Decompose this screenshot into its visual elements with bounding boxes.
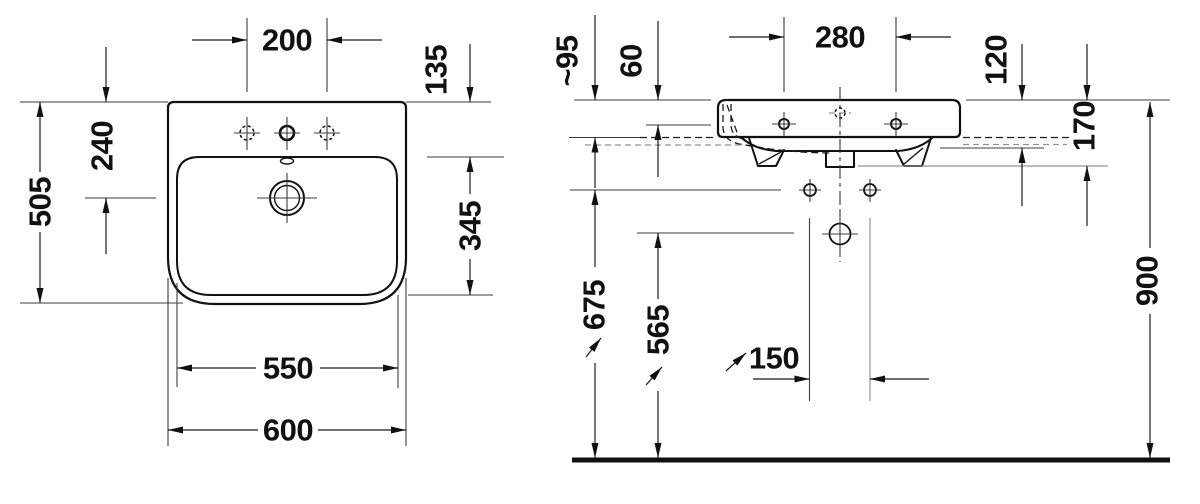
dim-fixing-height: 675 (577, 190, 612, 458)
overflow-slot (281, 158, 294, 164)
dim-fixing-spacing: 150 (726, 341, 929, 380)
drain-hole-top (257, 173, 317, 223)
top-view: 200 135 345 505 240 550 (20, 18, 504, 448)
dim-label: ~95 (550, 35, 585, 86)
dim-label: 345 (453, 201, 488, 251)
dim-apron-height: 120 (979, 35, 1023, 206)
dim-label: 135 (419, 45, 454, 95)
pointer-arrow (726, 353, 746, 371)
dim-label: 170 (1067, 101, 1102, 151)
dim-label: 900 (1130, 256, 1165, 306)
drain-crosshair (257, 173, 317, 223)
hidden-edge-dashed-muted (585, 145, 1067, 146)
dim-label: 600 (263, 413, 313, 448)
dim-label: 505 (23, 177, 58, 227)
dim-label: 200 (262, 23, 312, 58)
dim-label: 60 (614, 44, 649, 77)
dim-bowl-depth: 345 (453, 157, 488, 295)
outlet-crosshair (822, 213, 858, 256)
tap-holes-crosshairs (234, 117, 340, 150)
dim-label: 120 (979, 35, 1014, 85)
dim-rim-to-bowl: 135 (419, 44, 471, 102)
dim-label: 675 (577, 280, 612, 330)
dim-label: 150 (749, 341, 799, 376)
drawing-canvas: 200 135 345 505 240 550 (0, 0, 1200, 504)
dim-label: 240 (85, 121, 120, 171)
dim-rim-height: 900 (1130, 102, 1165, 458)
dim-outlet-height: 565 (641, 233, 676, 458)
washbasin-technical-drawing: 200 135 345 505 240 550 (0, 0, 1200, 504)
tap-holes-top (234, 117, 340, 150)
dim-label: 565 (641, 305, 676, 355)
pointer-arrow (586, 338, 601, 357)
dim-label: 280 (815, 20, 865, 55)
hidden-bowl-contour (723, 104, 833, 153)
dim-tap-spacing-top: 200 (192, 23, 382, 58)
dim-deck-step: 60 (614, 21, 659, 177)
waste-outlet-hole (822, 213, 858, 256)
pointer-arrow (646, 367, 662, 385)
dim-bowl-width: 550 (177, 351, 398, 386)
dim-rim-clearance: ~95 (550, 15, 596, 188)
dim-overall-width: 600 (168, 413, 406, 448)
dim-label: 550 (263, 351, 313, 386)
front-view: ~95 60 280 120 170 675 (550, 15, 1171, 460)
extension-lines-muted (858, 166, 1108, 401)
dim-drain-setback: 240 (85, 47, 120, 254)
dim-body-height: 170 (1067, 44, 1102, 226)
dim-overall-depth: 505 (23, 102, 58, 303)
dim-tap-spacing-front: 280 (729, 20, 951, 55)
